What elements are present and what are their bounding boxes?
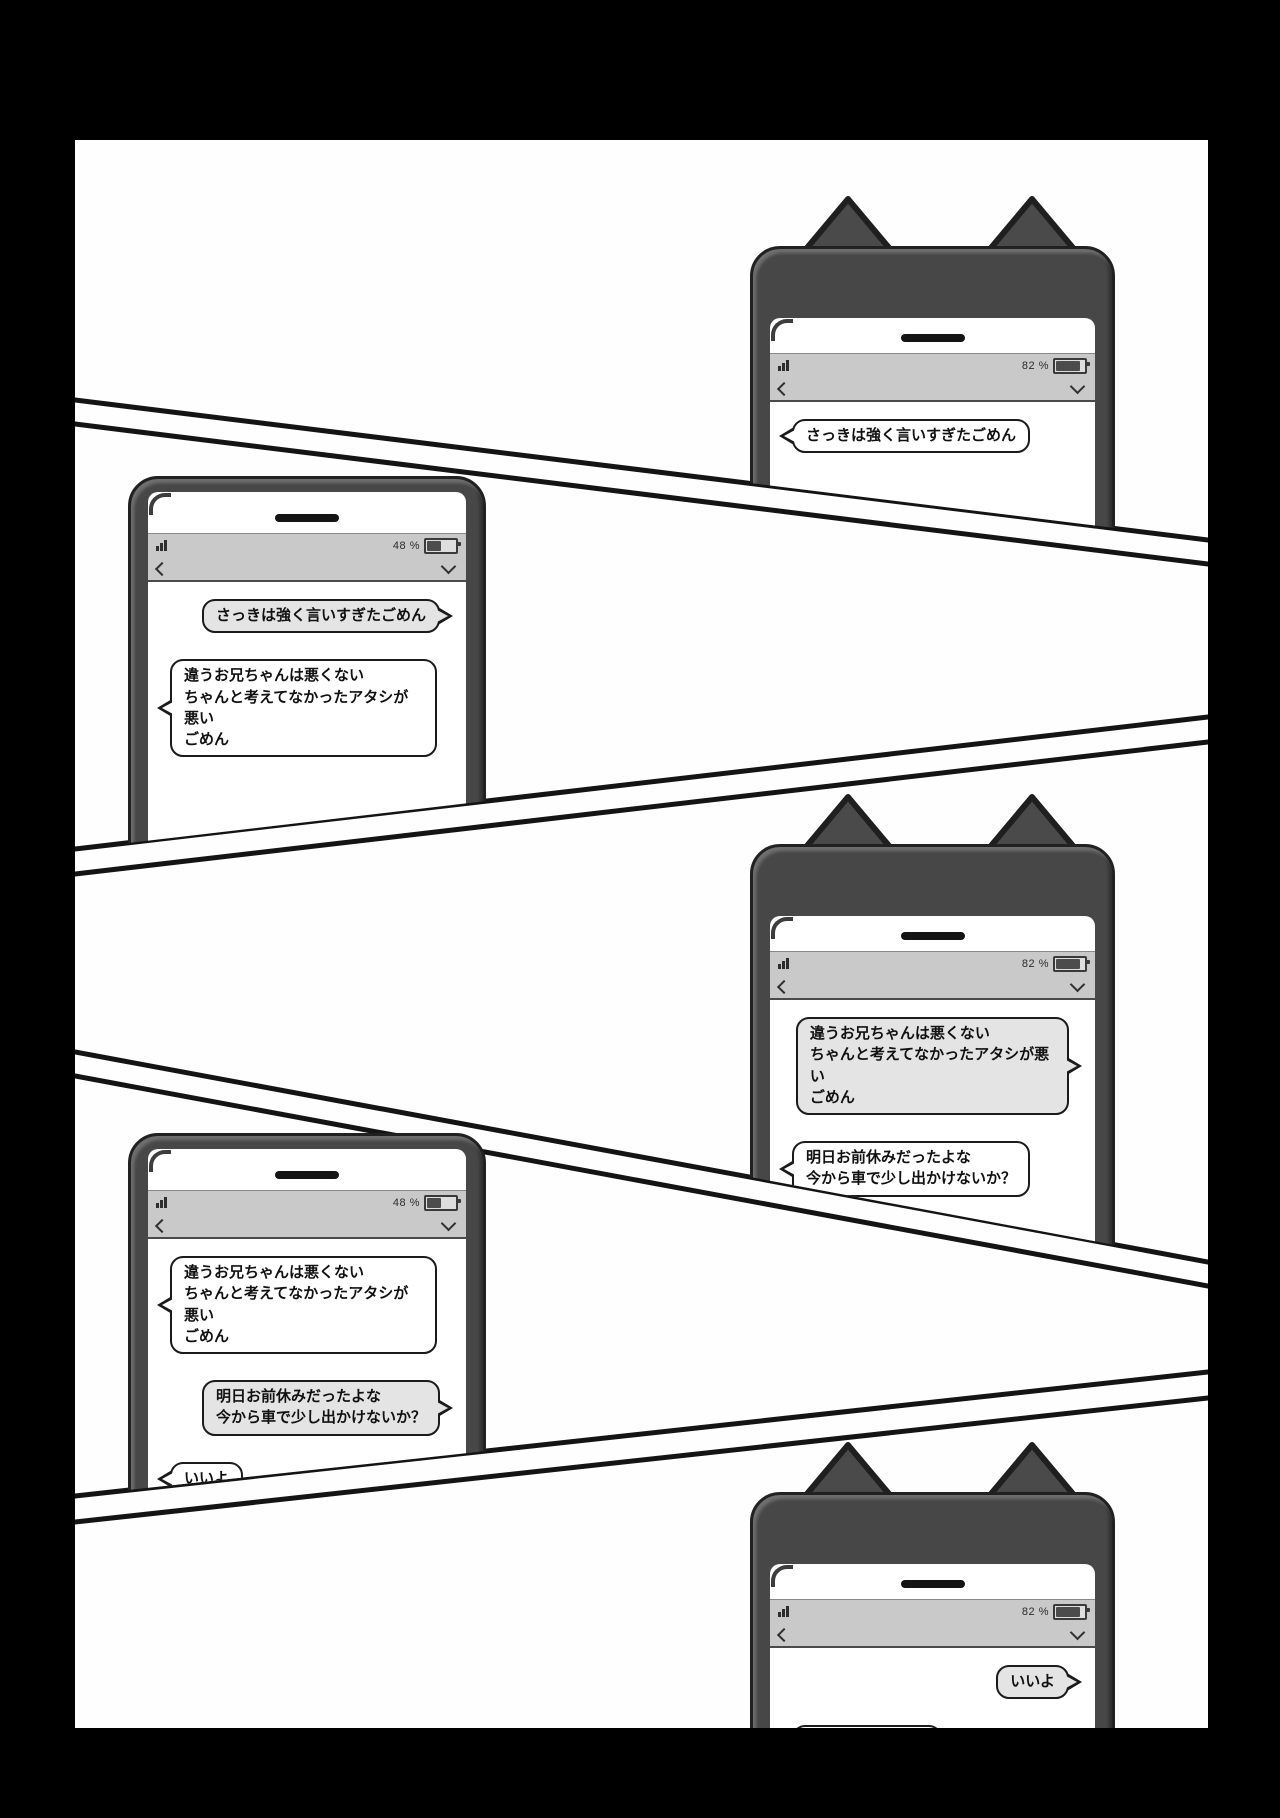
battery-icon (424, 538, 458, 554)
message-bubble-sent: さっきは強く言いすぎたごめん (202, 599, 440, 633)
phone-5-cat-ears: 82 % いいよ 22時に迎えに行く (750, 1436, 1115, 1728)
speaker-slot (901, 932, 965, 940)
signal-icon (778, 958, 789, 969)
battery-percent-label: 48 % (393, 1197, 420, 1209)
screen-corner-curl (149, 1150, 171, 1172)
battery-percent-label: 82 % (1022, 360, 1049, 372)
signal-icon (156, 540, 167, 551)
manga-page-background: { "page": { "type": "manga-page", "backg… (0, 0, 1280, 1818)
chat-area: さっきは強く言いすぎたごめん (770, 402, 1095, 473)
message-text: 違うお兄ちゃんは悪くない ちゃんと考えてなかったアタシが悪い ごめん (184, 1264, 408, 1345)
message-bubble-received: 違うお兄ちゃんは悪くない ちゃんと考えてなかったアタシが悪い ごめん (170, 659, 437, 757)
status-bar: 48 % (148, 1190, 466, 1239)
message-text: 明日お前休みだったよな 今から車で少し出かけないか？ (216, 1388, 426, 1426)
screen-corner-curl (771, 917, 793, 939)
phone-frame: 82 % いいよ 22時に迎えに行く (750, 1492, 1115, 1728)
battery-percent-label: 82 % (1022, 958, 1049, 970)
back-icon (155, 1219, 169, 1233)
screen-corner-curl (771, 1565, 793, 1587)
battery-percent-label: 48 % (393, 540, 420, 552)
chevron-down-icon (441, 559, 457, 575)
message-bubble-received: 明日お前休みだったよな 今から車で少し出かけないか？ (792, 1141, 1030, 1197)
chat-area: 違うお兄ちゃんは悪くない ちゃんと考えてなかったアタシが悪い ごめん 明日お前休… (770, 1000, 1095, 1217)
battery-icon (1053, 358, 1087, 374)
speaker-slot (901, 334, 965, 342)
status-bar: 82 % (770, 951, 1095, 1000)
status-bar: 82 % (770, 1599, 1095, 1648)
speaker-slot (901, 1580, 965, 1588)
chevron-down-icon (1070, 1625, 1086, 1641)
chevron-down-icon (1070, 977, 1086, 993)
phone-screen: 82 % いいよ 22時に迎えに行く (770, 1564, 1095, 1728)
chevron-down-icon (1070, 379, 1086, 395)
battery-percent-label: 82 % (1022, 1606, 1049, 1618)
battery-icon (424, 1195, 458, 1211)
message-text: 違うお兄ちゃんは悪くない ちゃんと考えてなかったアタシが悪い ごめん (810, 1025, 1049, 1106)
message-text: 明日お前休みだったよな 今から車で少し出かけないか？ (806, 1149, 1016, 1187)
chat-area: さっきは強く言いすぎたごめん 違うお兄ちゃんは悪くない ちゃんと考えてなかったア… (148, 582, 466, 777)
signal-icon (156, 1197, 167, 1208)
battery-icon (1053, 1604, 1087, 1620)
status-bar: 48 % (148, 533, 466, 582)
speaker-slot (275, 514, 339, 522)
back-icon (155, 562, 169, 576)
chat-area: いいよ 22時に迎えに行く (770, 1648, 1095, 1728)
speaker-slot (275, 1171, 339, 1179)
screen-corner-curl (771, 319, 793, 341)
message-text: いいよ (1010, 1673, 1055, 1690)
message-text: 違うお兄ちゃんは悪くない ちゃんと考えてなかったアタシが悪い ごめん (184, 667, 408, 748)
back-icon (777, 1628, 791, 1642)
screen-corner-curl (149, 493, 171, 515)
chevron-down-icon (441, 1216, 457, 1232)
message-bubble-received: 違うお兄ちゃんは悪くない ちゃんと考えてなかったアタシが悪い ごめん (170, 1256, 437, 1354)
back-icon (777, 980, 791, 994)
status-bar: 82 % (770, 353, 1095, 402)
message-bubble-sent: いいよ (996, 1665, 1069, 1699)
message-text: さっきは強く言いすぎたごめん (216, 607, 426, 624)
message-bubble-sent: 違うお兄ちゃんは悪くない ちゃんと考えてなかったアタシが悪い ごめん (796, 1017, 1069, 1115)
signal-icon (778, 360, 789, 371)
message-bubble-received: さっきは強く言いすぎたごめん (792, 419, 1030, 453)
message-text: さっきは強く言いすぎたごめん (806, 427, 1016, 444)
back-icon (777, 382, 791, 396)
message-bubble-received: 22時に迎えに行く (792, 1725, 942, 1728)
signal-icon (778, 1606, 789, 1617)
manga-paper: 82 % さっきは強く言いすぎたごめん 48 (75, 140, 1208, 1728)
message-bubble-sent: 明日お前休みだったよな 今から車で少し出かけないか？ (202, 1380, 440, 1436)
battery-icon (1053, 956, 1087, 972)
